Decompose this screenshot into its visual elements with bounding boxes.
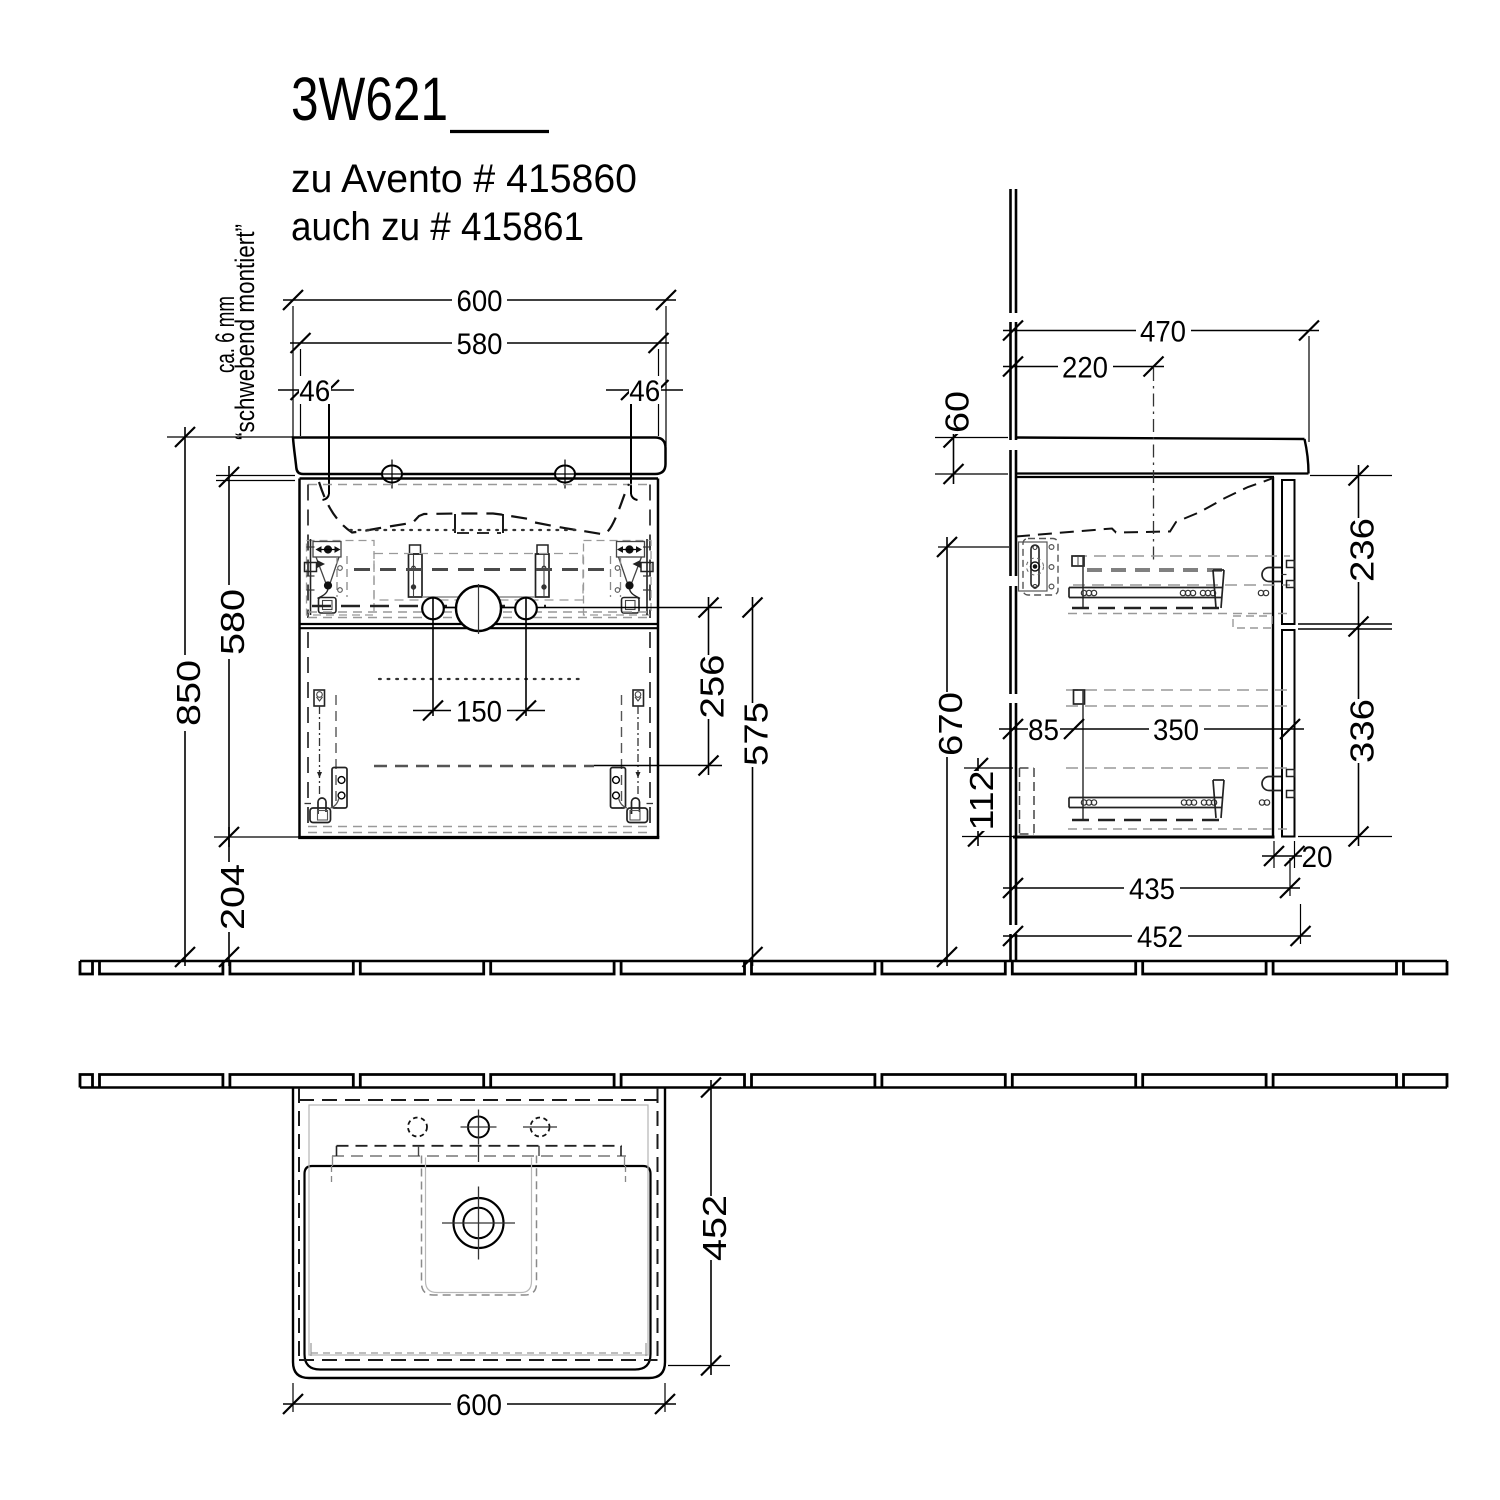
svg-text:204: 204 (214, 864, 251, 930)
svg-text:20: 20 (1302, 841, 1333, 874)
svg-text:46: 46 (299, 375, 330, 408)
svg-text:850: 850 (170, 660, 207, 726)
svg-text:580: 580 (457, 328, 503, 361)
svg-text:470: 470 (1140, 316, 1186, 349)
svg-text:3W621: 3W621 (291, 65, 448, 133)
svg-text:600: 600 (457, 285, 503, 318)
svg-text:670: 670 (932, 692, 969, 756)
svg-text:452: 452 (696, 1195, 733, 1261)
svg-text:336: 336 (1344, 699, 1381, 763)
svg-text:220: 220 (1062, 352, 1108, 385)
svg-text:150: 150 (456, 696, 502, 729)
svg-text:600: 600 (456, 1389, 502, 1422)
svg-text:236: 236 (1344, 518, 1381, 582)
svg-text:575: 575 (738, 702, 775, 766)
svg-text:auch zu # 415861: auch zu # 415861 (291, 205, 584, 249)
svg-text:“schwebend montiert”: “schwebend montiert” (230, 224, 260, 440)
svg-text:60: 60 (939, 391, 976, 433)
svg-text:112: 112 (963, 771, 1000, 831)
svg-text:350: 350 (1153, 714, 1199, 747)
svg-text:46: 46 (629, 375, 660, 408)
svg-text:85: 85 (1028, 714, 1059, 747)
svg-text:452: 452 (1137, 921, 1183, 954)
svg-text:580: 580 (214, 589, 251, 655)
svg-text:zu Avento # 415860: zu Avento # 415860 (291, 157, 637, 201)
svg-text:435: 435 (1129, 873, 1175, 906)
svg-text:256: 256 (694, 655, 731, 719)
